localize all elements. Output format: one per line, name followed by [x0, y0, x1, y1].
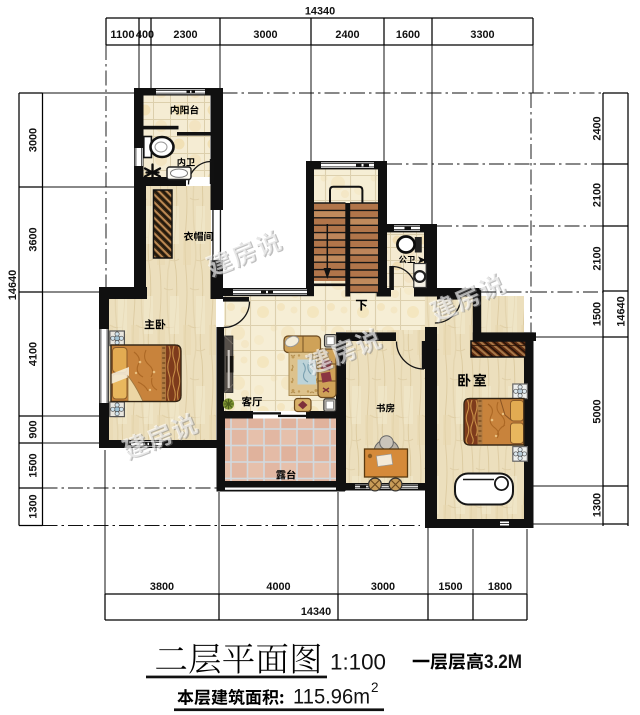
- svg-text:14340: 14340: [301, 606, 331, 618]
- svg-text:1600: 1600: [396, 29, 420, 41]
- svg-text:1500: 1500: [28, 453, 40, 477]
- svg-text:2100: 2100: [592, 183, 604, 207]
- svg-text:5000: 5000: [592, 399, 604, 423]
- svg-text:1:100: 1:100: [330, 650, 386, 675]
- svg-text:1800: 1800: [488, 581, 512, 593]
- svg-text:2300: 2300: [173, 29, 197, 41]
- svg-text:14640: 14640: [616, 296, 628, 326]
- svg-text:3000: 3000: [28, 128, 40, 152]
- svg-text:3300: 3300: [470, 29, 494, 41]
- svg-text:115.96m: 115.96m: [293, 685, 370, 709]
- svg-text:3600: 3600: [28, 227, 40, 251]
- svg-text:3.2M: 3.2M: [484, 651, 522, 673]
- svg-text:2400: 2400: [335, 29, 359, 41]
- svg-text:3000: 3000: [253, 29, 277, 41]
- svg-text:400: 400: [136, 29, 154, 41]
- svg-text:4000: 4000: [266, 581, 290, 593]
- svg-text:1100: 1100: [110, 29, 134, 41]
- svg-text:1500: 1500: [592, 302, 604, 326]
- svg-text:2100: 2100: [592, 246, 604, 270]
- svg-text:2: 2: [371, 680, 379, 695]
- svg-text:14340: 14340: [305, 6, 335, 18]
- svg-text:1300: 1300: [28, 494, 40, 518]
- svg-text:1500: 1500: [438, 581, 462, 593]
- svg-text:14640: 14640: [7, 270, 19, 300]
- svg-text:1300: 1300: [592, 493, 604, 517]
- svg-text:3000: 3000: [371, 581, 395, 593]
- svg-text:3800: 3800: [150, 581, 174, 593]
- svg-text:4100: 4100: [28, 342, 40, 366]
- svg-text:900: 900: [28, 420, 40, 438]
- svg-text:2400: 2400: [592, 116, 604, 140]
